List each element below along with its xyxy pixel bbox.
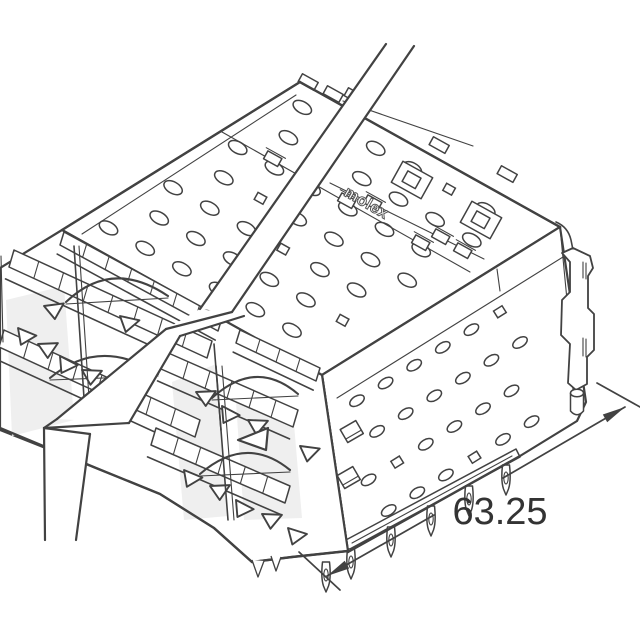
technical-drawing: molex <box>0 0 640 640</box>
extension-line <box>597 383 640 407</box>
cover-tab <box>429 137 449 154</box>
standoff-post <box>571 389 584 415</box>
cover-tab <box>497 166 517 183</box>
press-fit-pin <box>427 506 435 536</box>
drawing-canvas: molex <box>0 0 640 640</box>
dimension-label: 63.25 <box>452 491 547 533</box>
arrowhead <box>603 407 625 422</box>
